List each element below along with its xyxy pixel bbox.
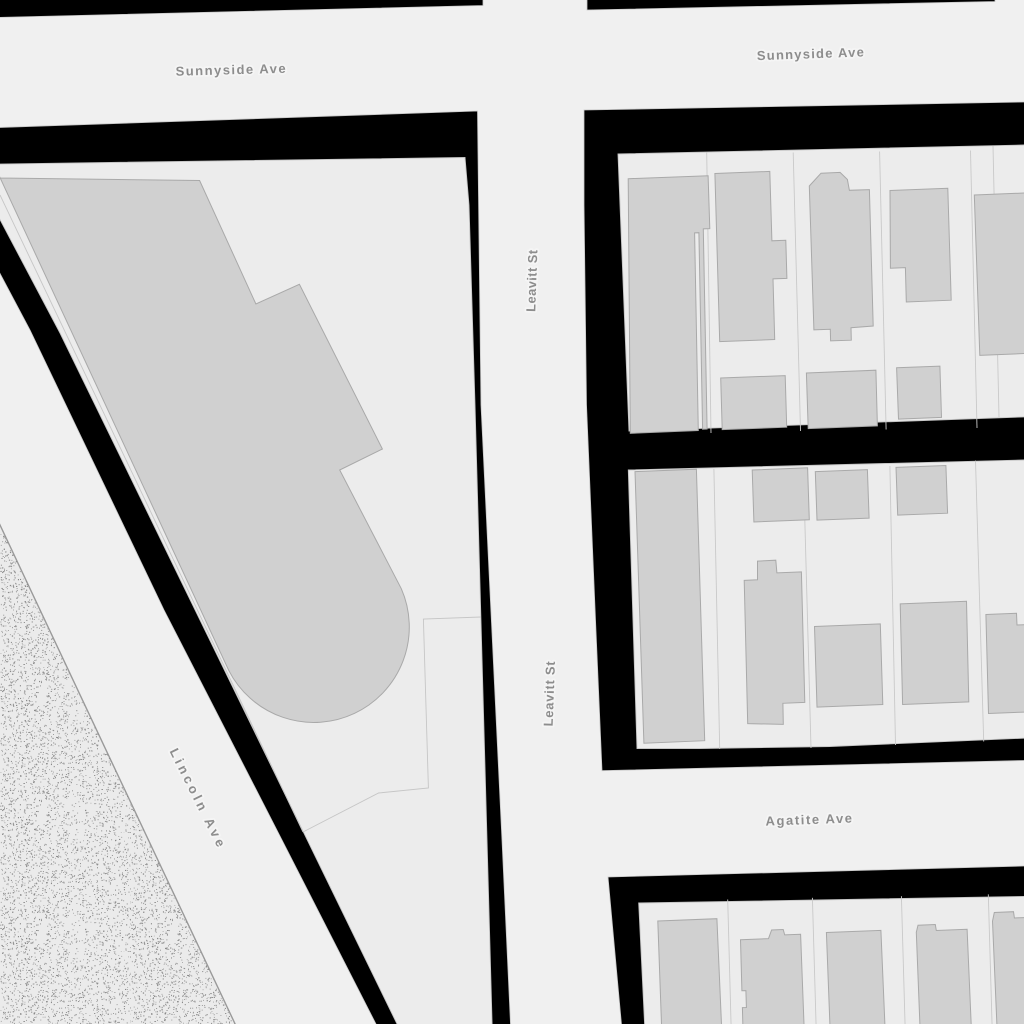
svg-text:Leavitt St: Leavitt St xyxy=(523,249,540,312)
svg-text:Agatite Ave: Agatite Ave xyxy=(765,811,852,829)
svg-text:Leavitt St: Leavitt St xyxy=(541,660,558,726)
